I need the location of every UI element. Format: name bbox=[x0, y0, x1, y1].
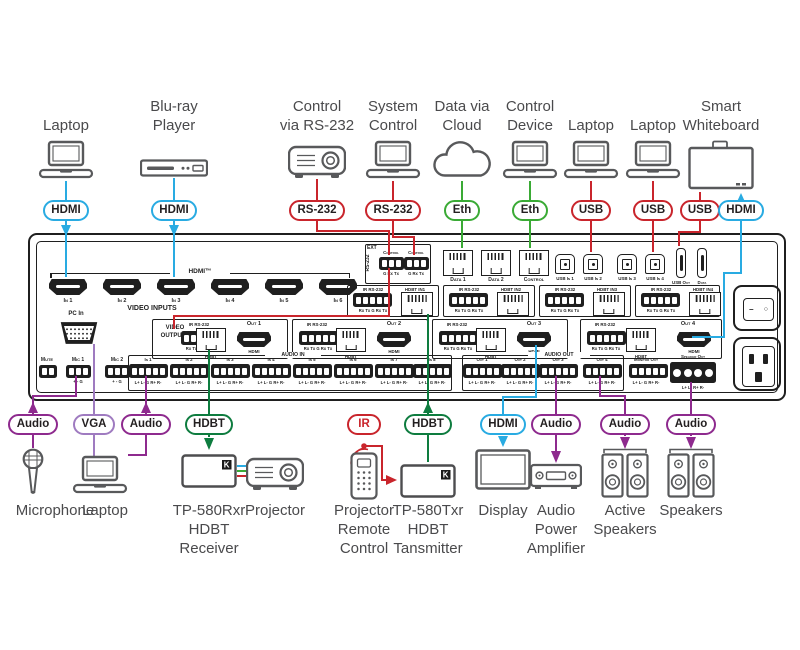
terminal-pin bbox=[317, 368, 322, 375]
device-icon-tp-580txr: K bbox=[400, 464, 456, 498]
terminal-pin bbox=[430, 368, 435, 375]
terminal-pin bbox=[302, 335, 307, 342]
pins-audio-out-2: L+ L- G R+ R- bbox=[501, 381, 539, 386]
terminal-audio-out-3 bbox=[539, 364, 578, 378]
pins-audio-out-4: L+ L- G R+ R- bbox=[583, 381, 621, 386]
terminal-ir-rs232-in-3 bbox=[545, 293, 584, 307]
label-audio-in-5: In 5 bbox=[298, 357, 326, 362]
label-audio-out-3: Out 3 bbox=[544, 357, 572, 362]
terminal-audio-out-2 bbox=[501, 364, 540, 378]
terminal-ir-rs232-in-4 bbox=[641, 293, 680, 307]
port-out-hdmi-3 bbox=[517, 332, 551, 347]
device-icon-control-device bbox=[501, 140, 559, 182]
device-icon-tp-580rxr: K bbox=[181, 454, 237, 488]
terminal-pin bbox=[358, 368, 363, 375]
terminal-pin bbox=[242, 368, 247, 375]
terminal-pin bbox=[139, 368, 144, 375]
device-icon-control-rs232 bbox=[288, 140, 346, 180]
terminal-pin bbox=[309, 335, 314, 342]
terminal-pin bbox=[303, 368, 308, 375]
terminal-pin bbox=[228, 368, 233, 375]
device-icon-smart-whiteboard bbox=[688, 140, 754, 192]
label-hdmi-in-5: In 5 bbox=[266, 298, 302, 304]
terminal-monitor-out bbox=[629, 364, 668, 378]
device-label-laptop-hdmi: Laptop bbox=[6, 88, 126, 135]
port-out-hdmi-1 bbox=[237, 332, 271, 347]
terminal-audio-in-2 bbox=[170, 364, 209, 378]
terminal-pin bbox=[449, 335, 454, 342]
label-line: Player bbox=[114, 116, 234, 135]
pins-audio-in-4: L+ L- G R+ R- bbox=[252, 381, 290, 386]
terminal-pin bbox=[108, 368, 113, 375]
terminal-pin bbox=[563, 368, 568, 375]
pins-ir-rs232: Rx Tx G Rx Tx bbox=[635, 309, 687, 314]
port-hdmi-in-4 bbox=[211, 279, 249, 295]
terminal-pin bbox=[658, 297, 663, 304]
device-icon-bluray-player bbox=[140, 158, 208, 178]
label-out-ir-rs232: IR RS-232 bbox=[435, 322, 479, 327]
cloud-icon bbox=[427, 136, 497, 182]
terminal-ext-control-1 bbox=[379, 257, 404, 270]
terminal-pin bbox=[423, 368, 428, 375]
terminal-audio-in-8 bbox=[413, 364, 452, 378]
terminal-pin bbox=[593, 368, 598, 375]
label-usb-in-4: USB In 4 bbox=[641, 276, 669, 281]
label-line: Speakers bbox=[631, 501, 751, 520]
label-usb-in-3: USB In 3 bbox=[613, 276, 641, 281]
port-hdmi-in-2 bbox=[103, 279, 141, 295]
port-out-hdbt-1 bbox=[196, 328, 226, 352]
terminal-pin bbox=[480, 368, 485, 375]
port-out-hdmi-4 bbox=[677, 332, 711, 347]
terminal-pin bbox=[310, 368, 315, 375]
port-usb-in-2 bbox=[583, 254, 603, 274]
terminal-pin bbox=[442, 335, 447, 342]
terminal-pin bbox=[385, 368, 390, 375]
terminal-pin bbox=[470, 335, 475, 342]
badge-hdmi-whiteboard: HDMI bbox=[718, 200, 764, 221]
pins-audio-out-1: L+ L- G R+ R- bbox=[463, 381, 501, 386]
label-pc-in: PC In bbox=[56, 311, 96, 317]
label-audio-in-2: In 2 bbox=[175, 357, 203, 362]
badge-usb-laptop2: USB bbox=[633, 200, 673, 221]
terminal-ir-rs232-out-3 bbox=[439, 331, 478, 345]
device-icon-amplifier bbox=[530, 460, 582, 490]
terminal-pin bbox=[416, 368, 421, 375]
arrow-into-hdbt-in1 bbox=[423, 402, 433, 413]
badge-hdmi-display: HDMI bbox=[480, 414, 526, 435]
badge-usb-whiteboard: USB bbox=[680, 200, 720, 221]
label-audio-in-7: In 7 bbox=[380, 357, 408, 362]
label-audio-out-2: Out 2 bbox=[506, 357, 534, 362]
badge-rs232-ext: RS-232 bbox=[289, 200, 345, 221]
terminal-pin bbox=[392, 368, 397, 375]
terminal-pin bbox=[351, 368, 356, 375]
ir-emitter-dot bbox=[361, 443, 367, 449]
device-icon-laptop-hdmi bbox=[37, 140, 95, 182]
label-monitor-out: Monitor Out bbox=[624, 357, 668, 362]
terminal-ext-control-2 bbox=[404, 257, 429, 270]
port-hdbt-in-1 bbox=[401, 292, 433, 316]
badge-usb-laptop1: USB bbox=[571, 200, 611, 221]
terminal-pin bbox=[600, 368, 605, 375]
label-audio-in-4: In 4 bbox=[257, 357, 285, 362]
terminal-pin bbox=[618, 335, 623, 342]
speakers-icon bbox=[601, 448, 649, 498]
port-vga-pc-in bbox=[60, 320, 98, 346]
terminal-pin bbox=[549, 368, 554, 375]
terminal-pin bbox=[556, 368, 561, 375]
terminal-pin bbox=[194, 368, 199, 375]
badge-hdbt-transmitter: HDBT bbox=[404, 414, 452, 435]
terminal-pin bbox=[316, 335, 321, 342]
label-out-2: Out 2 bbox=[370, 321, 418, 327]
pins-audio-out-3: L+ L- G R+ R- bbox=[539, 381, 577, 386]
label-out-3: Out 3 bbox=[510, 321, 558, 327]
ac-pin bbox=[749, 354, 754, 364]
power-switch: –○ bbox=[733, 285, 781, 331]
terminal-pin bbox=[370, 297, 375, 304]
terminal-pin bbox=[494, 368, 499, 375]
device-icon-data-cloud bbox=[427, 136, 497, 182]
ac-pin bbox=[763, 354, 768, 364]
pins-ir-rs232: Rx Tx G Rx Tx bbox=[347, 309, 399, 314]
label-line: Receiver bbox=[149, 539, 269, 558]
ac-pin bbox=[755, 372, 762, 382]
laptop-icon bbox=[501, 140, 559, 182]
terminal-pin bbox=[548, 297, 553, 304]
badge-audio-amplifier: Audio bbox=[531, 414, 581, 435]
power-inlet bbox=[733, 337, 781, 391]
terminal-pin bbox=[180, 368, 185, 375]
terminal-pin bbox=[160, 368, 165, 375]
terminal-pin bbox=[221, 368, 226, 375]
terminal-pin bbox=[487, 368, 492, 375]
terminal-pin bbox=[201, 368, 206, 375]
pins-mic-1: + - G bbox=[63, 380, 93, 385]
terminal-pin bbox=[262, 368, 267, 375]
device-icon-laptop-usb-2 bbox=[624, 140, 682, 182]
label-ext-control-2: Control bbox=[402, 250, 430, 255]
port-hdbt-in-4 bbox=[689, 292, 721, 316]
device-icon-speakers bbox=[667, 448, 715, 498]
terminal-pin bbox=[466, 368, 471, 375]
terminal-pin bbox=[396, 260, 401, 267]
speaker-terminal-pin bbox=[705, 369, 713, 377]
terminal-pin bbox=[378, 368, 383, 375]
bracket-tick bbox=[50, 273, 52, 278]
terminal-pin bbox=[365, 368, 370, 375]
amplifier-icon bbox=[530, 460, 582, 490]
projector-icon bbox=[288, 140, 346, 180]
device-label-smart-whiteboard: SmartWhiteboard bbox=[661, 88, 781, 135]
label-hdmi-in-1: In 1 bbox=[50, 298, 86, 304]
port-out-hdmi-2 bbox=[377, 332, 411, 347]
terminal-audio-out-1 bbox=[463, 364, 502, 378]
label-mute: Mute bbox=[32, 358, 62, 364]
terminal-pin bbox=[42, 368, 47, 375]
port-hdbt-in-2 bbox=[497, 292, 529, 316]
terminal-audio-in-3 bbox=[211, 364, 250, 378]
terminal-pin bbox=[504, 368, 509, 375]
badge-eth-cloud: Eth bbox=[444, 200, 480, 221]
terminal-pin bbox=[235, 368, 240, 375]
terminal-pin bbox=[269, 368, 274, 375]
terminal-mute bbox=[39, 365, 57, 378]
terminal-pin bbox=[672, 297, 677, 304]
label-audio-out-4: Out 4 bbox=[588, 357, 616, 362]
laptop-icon bbox=[364, 140, 422, 182]
pins-monitor-out: L+ L- G R+ R- bbox=[627, 381, 665, 386]
terminal-pin bbox=[76, 368, 81, 375]
terminal-ir-rs232-out-2 bbox=[299, 331, 338, 345]
port-usb-in-4 bbox=[645, 254, 665, 274]
port-out-hdbt-3 bbox=[476, 328, 506, 352]
label-ir-rs232: IR RS-232 bbox=[639, 287, 683, 292]
label-ext-control-1: Control bbox=[377, 250, 405, 255]
laptop-icon bbox=[624, 140, 682, 182]
arrow-into-mic1 bbox=[28, 402, 38, 413]
terminal-pin bbox=[463, 335, 468, 342]
label-ir-rs232: IR RS-232 bbox=[543, 287, 587, 292]
terminal-pin bbox=[356, 297, 361, 304]
terminal-pin bbox=[377, 297, 382, 304]
terminal-ir-rs232-out-4 bbox=[587, 331, 626, 345]
terminal-pin bbox=[511, 368, 516, 375]
label-rj45-3: Control bbox=[516, 278, 552, 284]
terminal-pin bbox=[604, 335, 609, 342]
terminal-mic-1 bbox=[66, 365, 91, 378]
terminal-pin bbox=[296, 368, 301, 375]
terminal-audio-in-1 bbox=[129, 364, 168, 378]
label-audio-in-3: In 3 bbox=[216, 357, 244, 362]
label-audio-in-8: In 8 bbox=[418, 357, 446, 362]
terminal-pin bbox=[406, 368, 411, 375]
rocker-on-mark: – bbox=[749, 305, 753, 314]
terminal-pin bbox=[324, 368, 329, 375]
label-speaker-out: Speaker Out bbox=[667, 354, 719, 359]
terminal-pin bbox=[399, 368, 404, 375]
port-rj45-control bbox=[519, 250, 549, 276]
port-hdmi-in-5 bbox=[265, 279, 303, 295]
terminal-pin bbox=[389, 260, 394, 267]
rocker: –○ bbox=[743, 298, 774, 321]
speaker-terminal-pin bbox=[673, 369, 681, 377]
ac-socket bbox=[742, 346, 775, 387]
pins-speaker-out: L+ L- R+ R- bbox=[668, 386, 718, 391]
label-out-4: Out 4 bbox=[664, 321, 712, 327]
pins-audio-in-6: L+ L- G R+ R- bbox=[334, 381, 372, 386]
label-hdmi-in-2: In 2 bbox=[104, 298, 140, 304]
pins-audio-in-3: L+ L- G R+ R- bbox=[211, 381, 249, 386]
terminal-pin bbox=[49, 368, 54, 375]
terminal-pin bbox=[69, 368, 74, 375]
label-line: Tansmitter bbox=[368, 539, 488, 558]
label-line: Laptop bbox=[6, 116, 126, 135]
terminal-audio-in-7 bbox=[375, 364, 414, 378]
label-out-ir-rs232: IR RS-232 bbox=[177, 322, 221, 327]
terminal-pin bbox=[611, 335, 616, 342]
svg-text:K: K bbox=[443, 471, 449, 480]
terminal-pin bbox=[173, 368, 178, 375]
badge-audio-speakers: Audio bbox=[666, 414, 716, 435]
terminal-pin bbox=[276, 368, 281, 375]
pins-audio-in-1: L+ L- G R+ R- bbox=[129, 381, 167, 386]
label-line: Laptop bbox=[45, 501, 165, 520]
device-label-laptop-vga: Laptop bbox=[45, 501, 165, 520]
device-icon-system-control bbox=[364, 140, 422, 182]
terminal-pin bbox=[115, 368, 120, 375]
device-icon-laptop-vga bbox=[71, 455, 129, 497]
port-rj45-data-2 bbox=[481, 250, 511, 276]
terminal-pin bbox=[382, 260, 387, 267]
pins-audio-in-7: L+ L- G R+ R- bbox=[375, 381, 413, 386]
rocker-off-mark: ○ bbox=[764, 306, 768, 313]
pins-ext-control-1: G Rx Tx bbox=[377, 272, 405, 277]
terminal-pin bbox=[323, 335, 328, 342]
badge-eth-device: Eth bbox=[512, 200, 548, 221]
label-ir-rs232: IR RS-232 bbox=[447, 287, 491, 292]
label-usb-in-1: USB In 1 bbox=[551, 276, 579, 281]
speaker-terminal-pin bbox=[694, 369, 702, 377]
terminal-audio-out-4 bbox=[583, 364, 622, 378]
terminal-pin bbox=[459, 297, 464, 304]
terminal-pin bbox=[184, 335, 189, 342]
terminal-pin bbox=[384, 297, 389, 304]
terminal-pin bbox=[590, 335, 595, 342]
terminal-pin bbox=[146, 368, 151, 375]
terminal-pin bbox=[407, 260, 412, 267]
terminal-pin bbox=[646, 368, 651, 375]
label-line: Speakers bbox=[565, 520, 685, 539]
badge-ir-remote: IR bbox=[347, 414, 381, 435]
extender-icon: K bbox=[400, 464, 456, 498]
terminal-pin bbox=[363, 297, 368, 304]
terminal-audio-in-4 bbox=[252, 364, 291, 378]
badge-audio-active-speakers: Audio bbox=[600, 414, 650, 435]
terminal-pin bbox=[414, 260, 419, 267]
device-icon-display bbox=[475, 449, 531, 491]
label-rj45-1: Data 1 bbox=[440, 278, 476, 284]
terminal-speaker-out bbox=[670, 362, 716, 383]
terminal-pin bbox=[473, 297, 478, 304]
terminal-pin bbox=[283, 368, 288, 375]
terminal-pin bbox=[607, 368, 612, 375]
label-mic-1: Mic 1 bbox=[63, 358, 93, 364]
terminal-pin bbox=[651, 297, 656, 304]
port-hdmi-in-1 bbox=[49, 279, 87, 295]
terminal-pin bbox=[632, 368, 637, 375]
label-out-hdmi-2: HDMI bbox=[377, 349, 411, 354]
extender-icon: K bbox=[181, 454, 237, 488]
label-usb-in-2: USB In 2 bbox=[579, 276, 607, 281]
label-line: Whiteboard bbox=[661, 116, 781, 135]
port-hdbt-in-3 bbox=[593, 292, 625, 316]
terminal-pin bbox=[452, 297, 457, 304]
terminal-pin bbox=[597, 335, 602, 342]
arrow-ir-to-transmitter bbox=[386, 475, 397, 485]
badge-rs232-ctrl: RS-232 bbox=[365, 200, 421, 221]
terminal-pin bbox=[330, 335, 335, 342]
label-video-inputs: VIDEO INPUTS bbox=[112, 305, 192, 312]
terminal-pin bbox=[542, 368, 547, 375]
terminal-pin bbox=[444, 368, 449, 375]
port-out-hdbt-4 bbox=[626, 328, 656, 352]
terminal-pin bbox=[473, 368, 478, 375]
pins-ext-control-2: G Rx Tx bbox=[402, 272, 430, 277]
terminal-pin bbox=[214, 368, 219, 375]
bracket-tick bbox=[349, 273, 351, 278]
terminal-pin bbox=[660, 368, 665, 375]
terminal-pin bbox=[644, 297, 649, 304]
terminal-pin bbox=[480, 297, 485, 304]
terminal-pin bbox=[255, 368, 260, 375]
device-icon-remote-control bbox=[350, 452, 378, 500]
port-rj45-data-1 bbox=[443, 250, 473, 276]
terminal-pin bbox=[562, 297, 567, 304]
projector-icon bbox=[246, 452, 304, 492]
label-line: Blu-ray bbox=[114, 97, 234, 116]
terminal-pin bbox=[555, 297, 560, 304]
whiteboard-icon bbox=[688, 140, 754, 192]
label-ext-rs232: RS-232 bbox=[365, 246, 373, 280]
terminal-pin bbox=[153, 368, 158, 375]
terminal-pin bbox=[665, 297, 670, 304]
svg-text:K: K bbox=[224, 461, 230, 470]
pins-audio-in-5: L+ L- G R+ R- bbox=[293, 381, 331, 386]
port-hdmi-in-3 bbox=[157, 279, 195, 295]
terminal-pin bbox=[639, 368, 644, 375]
terminal-ir-rs232-in-1 bbox=[353, 293, 392, 307]
terminal-pin bbox=[132, 368, 137, 375]
label-ir-rs232: IR RS-232 bbox=[351, 287, 395, 292]
port-usb-aux-2 bbox=[697, 248, 707, 278]
terminal-pin bbox=[586, 368, 591, 375]
badge-hdbt-receiver: HDBT bbox=[185, 414, 233, 435]
arrow-into-audio-in1 bbox=[141, 402, 151, 413]
matrix-switcher-rear-panel: HDMI™In 1In 2In 3In 4In 5In 6VIDEO INPUT… bbox=[28, 233, 786, 401]
label-line: HDBT bbox=[368, 520, 488, 539]
label-hdmi-group: HDMI™ bbox=[170, 268, 230, 275]
terminal-pin bbox=[421, 260, 426, 267]
device-icon-microphone bbox=[18, 448, 48, 502]
terminal-pin bbox=[525, 368, 530, 375]
remote-icon bbox=[350, 452, 378, 500]
terminal-pin bbox=[344, 368, 349, 375]
port-usb-in-1 bbox=[555, 254, 575, 274]
label-audio-in-1: In 1 bbox=[134, 357, 162, 362]
port-usb-in-3 bbox=[617, 254, 637, 274]
av-matrix-connection-diagram: HDMI™In 1In 2In 3In 4In 5In 6VIDEO INPUT… bbox=[0, 0, 800, 650]
speakers-icon bbox=[667, 448, 715, 498]
port-usb-aux-1 bbox=[676, 248, 686, 278]
badge-audio-laptop: Audio bbox=[121, 414, 171, 435]
terminal-pin bbox=[653, 368, 658, 375]
label-rj45-2: Data 2 bbox=[478, 278, 514, 284]
arrow-to-receiver bbox=[204, 438, 214, 450]
device-label-bluray-player: Blu-rayPlayer bbox=[114, 88, 234, 135]
badge-audio-mic: Audio bbox=[8, 414, 58, 435]
device-icon-laptop-usb-1 bbox=[562, 140, 620, 182]
device-icon-projector bbox=[246, 452, 304, 492]
label-out-1: Out 1 bbox=[230, 321, 278, 327]
terminal-pin bbox=[569, 297, 574, 304]
laptop-icon bbox=[71, 455, 129, 497]
pins-ir-rs232: Rx Tx G Rx Tx bbox=[539, 309, 591, 314]
speaker-terminal-pin bbox=[684, 369, 692, 377]
terminal-pin bbox=[122, 368, 127, 375]
label-out-ir-rs232: IR RS-232 bbox=[295, 322, 339, 327]
